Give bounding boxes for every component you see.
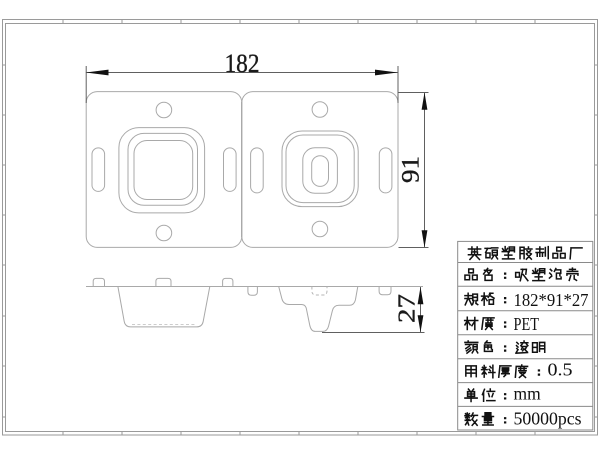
svg-text:50000pcs: 50000pcs (514, 409, 582, 429)
svg-text:0.5: 0.5 (548, 360, 573, 380)
svg-text:91: 91 (398, 156, 425, 183)
svg-text:PET: PET (514, 314, 540, 334)
svg-text:mm: mm (514, 384, 542, 404)
svg-text:182*91*27: 182*91*27 (514, 290, 589, 310)
svg-text:27: 27 (394, 294, 420, 323)
svg-text:182: 182 (225, 48, 260, 78)
